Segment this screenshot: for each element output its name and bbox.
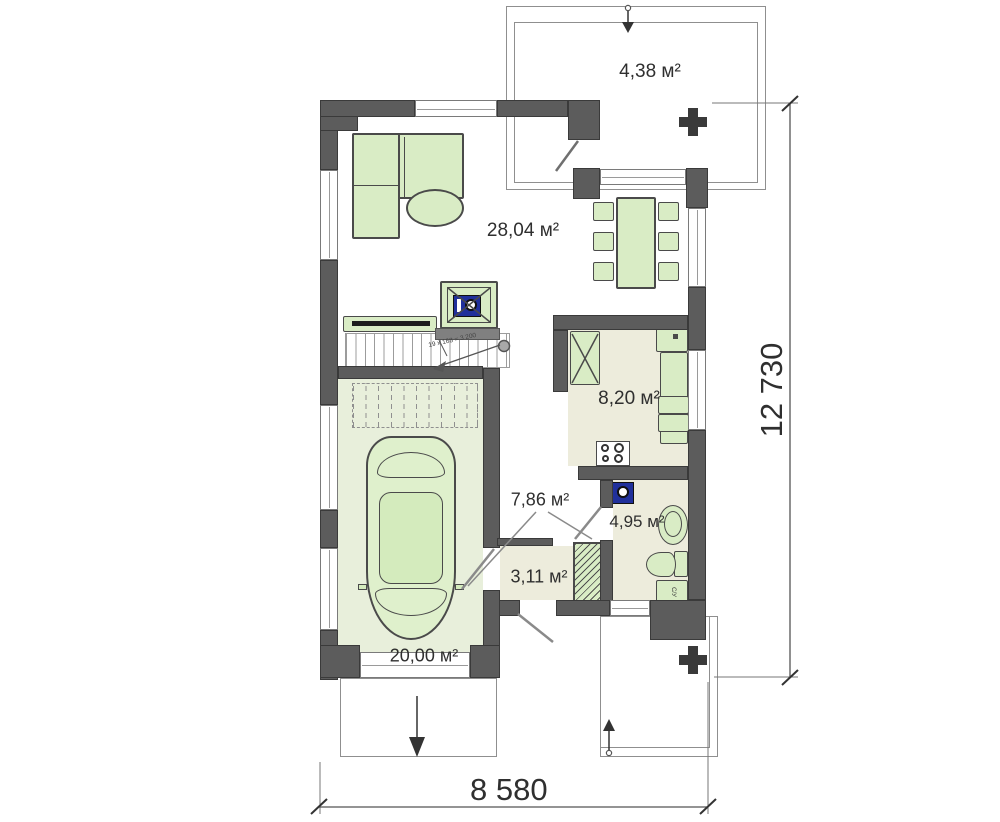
wall <box>497 538 553 546</box>
corner-sofa <box>352 133 400 239</box>
window <box>320 170 338 260</box>
washing-machine-door <box>617 486 629 498</box>
bath-sink-basin <box>664 511 682 537</box>
wall <box>320 100 415 117</box>
hall-leader-line <box>548 512 592 539</box>
wall <box>338 366 483 379</box>
stove-burner <box>601 444 609 452</box>
floor-plan-canvas: 19 x 168 = 3 200 <box>0 0 1000 822</box>
wall-corner <box>470 645 500 678</box>
wall-corner <box>320 645 360 678</box>
dining-chair <box>658 202 679 221</box>
wall-corner <box>650 600 706 640</box>
window <box>415 100 497 117</box>
kitchen-base-cabinet <box>658 396 689 414</box>
room-label-kitchen: 8,20 м² <box>598 388 660 410</box>
car-mirror <box>358 584 367 590</box>
tv-icon <box>352 321 430 326</box>
linework-overlay <box>0 0 1000 822</box>
fireplace-insert-fan <box>465 299 477 311</box>
wall <box>497 100 568 117</box>
room-label-vestibule: 3,11 м² <box>510 567 567 588</box>
wall <box>553 315 688 330</box>
stove-burner <box>602 455 609 462</box>
wall <box>320 510 338 548</box>
wall <box>556 600 610 616</box>
window <box>610 600 650 616</box>
wall <box>688 287 706 350</box>
dining-chair <box>593 232 614 251</box>
window <box>600 169 686 185</box>
fridge <box>570 331 600 385</box>
toilet-tank <box>674 551 688 577</box>
kitchen-sink-icon <box>673 334 678 339</box>
car-mirror <box>455 584 464 590</box>
staircase-upper-flight-dashed <box>352 383 478 428</box>
dimension-height-label: 12 730 <box>754 343 790 438</box>
door-swing-entrance <box>518 614 553 642</box>
wall-corner <box>686 168 708 208</box>
toilet-bowl <box>646 552 676 577</box>
dining-chair <box>593 262 614 281</box>
porch-column-icon <box>688 646 698 674</box>
dimension-width-label: 8 580 <box>470 772 548 808</box>
wall <box>600 480 613 508</box>
terrace-column-icon <box>688 108 698 136</box>
room-label-living: 28,04 м² <box>487 220 559 242</box>
stove-burner <box>614 443 624 453</box>
dining-chair <box>593 202 614 221</box>
car-roof <box>379 492 443 584</box>
coffee-table <box>406 189 464 227</box>
dining-table <box>616 197 656 289</box>
wall <box>553 330 568 392</box>
wall <box>497 600 520 616</box>
room-label-bathroom: 4,95 м² <box>609 512 664 532</box>
window <box>688 350 706 430</box>
wall <box>600 540 613 602</box>
room-label-hall: 7,86 м² <box>511 490 569 511</box>
wall-corner <box>568 100 600 140</box>
wall-corner <box>573 168 600 199</box>
window <box>320 548 338 630</box>
fireplace-insert-glass <box>457 299 461 312</box>
kitchen-base-cabinet <box>658 414 689 432</box>
window <box>688 208 706 287</box>
wall <box>578 466 688 480</box>
window <box>320 405 338 510</box>
wall <box>688 430 706 600</box>
wardrobe <box>573 542 603 602</box>
wall <box>483 368 500 548</box>
dining-chair <box>658 262 679 281</box>
sofa-seam <box>354 185 398 186</box>
room-label-garage: 20,00 м² <box>390 646 458 667</box>
bath-cabinet-label: С/У <box>670 587 676 597</box>
door-swing-bathroom <box>575 507 601 539</box>
room-label-terrace: 4,38 м² <box>619 61 681 83</box>
driveway-outline <box>340 678 497 757</box>
stove-burner <box>614 454 623 463</box>
dining-chair <box>658 232 679 251</box>
wall <box>320 260 338 405</box>
sofa-seam <box>404 137 405 197</box>
